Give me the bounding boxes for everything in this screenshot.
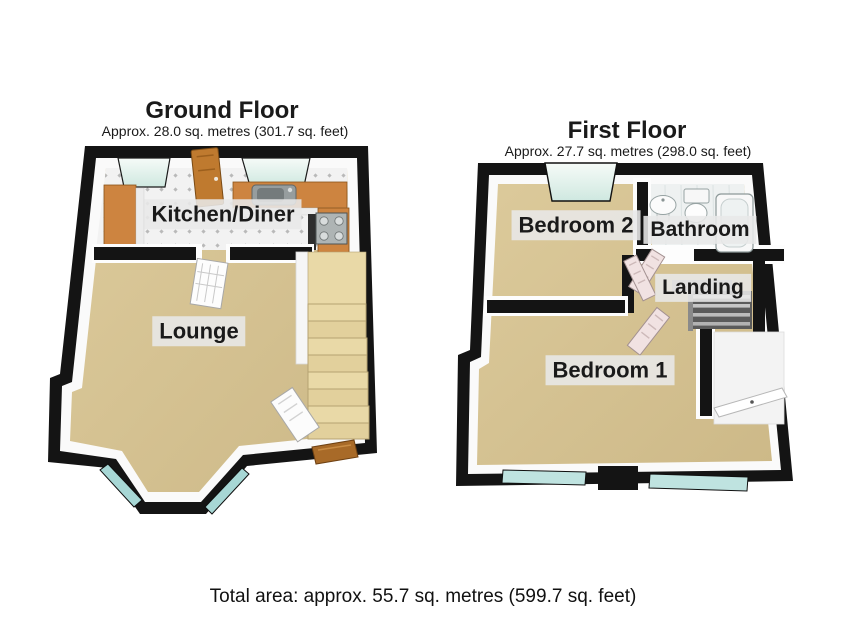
hob-burner	[320, 217, 328, 225]
bedroom1-window-right	[649, 474, 748, 491]
ground-floor-subtitle: Approx. 28.0 sq. metres (301.7 sq. feet)	[102, 123, 349, 139]
kitchen-window-left	[118, 158, 170, 187]
kitchen-lounge-door	[190, 258, 228, 308]
ground-floor-title: Ground Floor	[145, 97, 298, 125]
kitchen-lounge-wall-left	[94, 247, 196, 260]
first-floor-title: First Floor	[568, 117, 687, 145]
closet-knob	[750, 400, 754, 404]
bedroom1-window-left	[502, 470, 586, 485]
kitchen-back-door	[191, 148, 224, 208]
bedroom2-window	[545, 163, 617, 201]
first-floor-subtitle: Approx. 27.7 sq. metres (298.0 sq. feet)	[505, 143, 752, 159]
hob-burner	[335, 217, 343, 225]
kitchen-tap	[288, 188, 292, 192]
ground-stairs-steps	[308, 304, 369, 439]
hob-burner	[335, 232, 343, 240]
room-label-lounge: Lounge	[152, 316, 245, 346]
floorplan-page: Ground Floor Approx. 28.0 sq. metres (30…	[0, 0, 850, 618]
total-area-text: Total area: approx. 55.7 sq. metres (599…	[210, 586, 637, 608]
bedroom1-landing-wall	[700, 315, 712, 416]
hob-burner	[320, 232, 328, 240]
room-label-bathroom: Bathroom	[643, 216, 756, 244]
room-label-bedroom2: Bedroom 2	[512, 210, 641, 240]
ground-stairs-landing	[308, 252, 366, 304]
room-label-landing: Landing	[655, 274, 751, 302]
room-label-bedroom1: Bedroom 1	[546, 355, 675, 385]
kitchen-cabinet-face-left	[136, 188, 144, 248]
bedroom2-bedroom1-wall	[487, 300, 625, 313]
floorplan-graphic	[0, 0, 850, 618]
stair-banister	[296, 252, 308, 364]
room-label-kitchen-diner: Kitchen/Diner	[144, 199, 301, 229]
bedroom1-window-pillar	[598, 466, 638, 490]
kitchen-hob	[316, 213, 347, 244]
kitchen-counter-left	[104, 185, 136, 251]
